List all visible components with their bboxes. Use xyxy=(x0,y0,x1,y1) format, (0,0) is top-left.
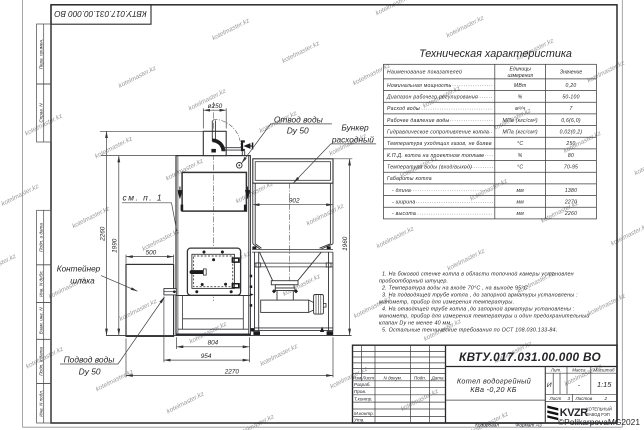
svg-text:МВт: МВт xyxy=(514,83,527,89)
svg-text:0,20: 0,20 xyxy=(566,83,577,89)
svg-text:мм: мм xyxy=(516,200,524,206)
svg-text:м³/ч: м³/ч xyxy=(515,106,525,112)
svg-text:шлака: шлака xyxy=(70,277,95,286)
svg-text:- длина: - длина xyxy=(392,188,411,194)
svg-text:kotelmaster.kz: kotelmaster.kz xyxy=(95,368,135,393)
svg-text:kotelmaster.kz: kotelmaster.kz xyxy=(469,177,509,202)
svg-text:измерения: измерения xyxy=(507,73,533,79)
svg-text:kotelmaster.kz: kotelmaster.kz xyxy=(375,225,415,250)
svg-text:1960: 1960 xyxy=(342,236,349,251)
svg-text:kotelmaster.kz: kotelmaster.kz xyxy=(259,343,299,368)
svg-text:kotelmaster.kz: kotelmaster.kz xyxy=(118,298,158,323)
svg-text:Диапазон рабочего регулировани: Диапазон рабочего регулирования xyxy=(386,95,478,101)
svg-text:Отвод воды: Отвод воды xyxy=(274,114,323,124)
svg-text:мм: мм xyxy=(516,211,524,217)
svg-text:kotelmaster.kz: kotelmaster.kz xyxy=(0,253,18,278)
svg-text:500: 500 xyxy=(146,249,157,256)
svg-text:kotelmaster.kz: kotelmaster.kz xyxy=(25,345,65,370)
svg-text:Подп.: Подп. xyxy=(414,375,426,380)
svg-text:2270: 2270 xyxy=(564,200,577,206)
svg-text:1990: 1990 xyxy=(112,238,119,253)
svg-text:2: 2 xyxy=(604,396,608,401)
svg-text:50-100: 50-100 xyxy=(562,95,579,101)
svg-text:0,6(6,0): 0,6(6,0) xyxy=(561,118,581,124)
svg-text:kotelmaster.kz: kotelmaster.kz xyxy=(0,183,40,208)
svg-text:kotelmaster.kz: kotelmaster.kz xyxy=(94,135,134,160)
svg-text:0,02(0,2): 0,02(0,2) xyxy=(560,130,583,136)
svg-text:80: 80 xyxy=(568,153,574,159)
svg-text:мм: мм xyxy=(516,188,524,194)
svg-text:902: 902 xyxy=(289,198,300,205)
svg-text:kotelmaster.kz: kotelmaster.kz xyxy=(446,247,486,272)
svg-text:kotelmaster.kz: kotelmaster.kz xyxy=(165,157,205,182)
svg-text:2270: 2270 xyxy=(224,368,240,375)
svg-text:%: % xyxy=(518,153,523,159)
svg-text:Расход воды: Расход воды xyxy=(387,106,420,112)
svg-text:Рабочее давление воды: Рабочее давление воды xyxy=(387,118,449,124)
svg-text:©PolikarpovaMG2021: ©PolikarpovaMG2021 xyxy=(558,417,640,427)
svg-text:kotelmaster.kz: kotelmaster.kz xyxy=(281,40,321,65)
svg-text:Лист: Лист xyxy=(361,375,374,380)
svg-text:Лит.: Лит. xyxy=(550,368,562,373)
svg-text:КВТУ.017.031.00.000 ВО: КВТУ.017.031.00.000 ВО xyxy=(54,9,147,18)
svg-text:МПа (кгс/см²): МПа (кгс/см²) xyxy=(503,130,538,136)
svg-text:kotelmaster.kz: kotelmaster.kz xyxy=(166,390,206,415)
svg-text:И: И xyxy=(547,382,552,389)
svg-text:Формат А3: Формат А3 xyxy=(515,423,542,429)
svg-text:kotelmaster.kz: kotelmaster.kz xyxy=(610,222,644,247)
svg-text:Масса: Масса xyxy=(572,368,586,373)
svg-text:клапан Dу не менее 40 мм.: клапан Dу не менее 40 мм. xyxy=(379,321,452,327)
svg-text:МПа (кгс/см²): МПа (кгс/см²) xyxy=(503,118,538,124)
svg-text:Разраб.: Разраб. xyxy=(354,382,371,387)
svg-text:Утв.: Утв. xyxy=(354,418,364,423)
svg-text:Подп. и дата: Подп. и дата xyxy=(38,223,43,252)
svg-text:Инв. N дубл.: Инв. N дубл. xyxy=(38,270,43,297)
svg-text:-: - xyxy=(578,382,581,389)
svg-text:Справ. N: Справ. N xyxy=(38,103,43,123)
svg-text:КВа -0,20 КБ: КВа -0,20 КБ xyxy=(470,385,517,394)
svg-text:5. Остальные технические треб: 5. Остальные технические требования по О… xyxy=(382,328,557,334)
svg-text:N докум.: N докум. xyxy=(384,375,403,380)
svg-text:kotelmaster.kz: kotelmaster.kz xyxy=(306,202,346,227)
svg-text:2260: 2260 xyxy=(564,211,577,217)
svg-text:Габариты котла: Габариты котла xyxy=(387,176,432,182)
svg-text:ø250: ø250 xyxy=(208,103,223,110)
svg-text:1:15: 1:15 xyxy=(597,380,612,389)
svg-text:kotelmaster.kz: kotelmaster.kz xyxy=(118,65,158,90)
svg-text:Температура уходящих газов, не: Температура уходящих газов, не более xyxy=(387,141,492,147)
svg-text:Копировал: Копировал xyxy=(475,423,499,429)
svg-text:kotelmaster.kz: kotelmaster.kz xyxy=(211,17,251,42)
svg-text:- ширина: - ширина xyxy=(392,200,415,206)
svg-text:Изм: Изм xyxy=(353,375,362,380)
svg-text:Бункер: Бункер xyxy=(341,122,369,132)
svg-text:манометр, прибор для измерения: манометр, прибор для измерения температу… xyxy=(379,300,514,306)
svg-text:804: 804 xyxy=(208,340,219,347)
svg-text:Контейнер: Контейнер xyxy=(57,265,101,274)
svg-text:kotelmaster.kz: kotelmaster.kz xyxy=(71,205,111,230)
svg-text:Номинальная мощность: Номинальная мощность xyxy=(387,83,452,89)
svg-text:Гидравлическое сопротивление к: Гидравлическое сопротивление котла xyxy=(387,130,489,136)
svg-text:1. На боковой стенке котла в: 1. На боковой стенке котла в области топ… xyxy=(382,271,574,278)
svg-text:70-95: 70-95 xyxy=(564,165,578,171)
svg-text:пробоотборный штуцер.: пробоотборный штуцер. xyxy=(379,278,448,285)
svg-text:%: % xyxy=(518,95,523,101)
svg-text:kotelmaster.kz: kotelmaster.kz xyxy=(24,112,64,137)
svg-text:манометр, прибор для измерения: манометр, прибор для измерения температу… xyxy=(379,313,590,320)
svg-text:КВТУ.017.031.00.000 ВО: КВТУ.017.031.00.000 ВО xyxy=(459,350,601,364)
svg-text:Т.контр.: Т.контр. xyxy=(354,396,373,401)
svg-text:Листов: Листов xyxy=(575,396,593,401)
svg-text:Дата: Дата xyxy=(430,375,444,380)
svg-text:kotelmaster.kz: kotelmaster.kz xyxy=(375,0,415,17)
svg-text:kotelmaster.kz: kotelmaster.kz xyxy=(633,152,644,177)
svg-text:kotelmaster.kz: kotelmaster.kz xyxy=(445,14,485,39)
svg-text:Значение: Значение xyxy=(560,70,583,76)
svg-text:Dy 50: Dy 50 xyxy=(79,366,101,376)
svg-text:3: 3 xyxy=(568,396,571,401)
svg-text:М.контр.: М.контр. xyxy=(354,411,374,416)
svg-text:2260: 2260 xyxy=(100,226,107,242)
svg-text:Масштаб: Масштаб xyxy=(593,368,614,373)
svg-text:3. На подводящей трубе котла: 3. На подводящей трубе котла , до запорн… xyxy=(382,292,578,299)
svg-text:расходный: расходный xyxy=(331,135,374,145)
svg-text:Инв. N подл.: Инв. N подл. xyxy=(38,390,43,417)
svg-text:°С: °С xyxy=(517,165,523,171)
svg-text:°С: °С xyxy=(517,141,523,147)
svg-text:954: 954 xyxy=(201,353,212,360)
svg-text:Подп. и дата: Подп. и дата xyxy=(38,347,43,376)
svg-text:1380: 1380 xyxy=(565,188,577,194)
svg-text:Взам. инв. N: Взам. инв. N xyxy=(38,307,43,334)
svg-text:Перв. примен.: Перв. примен. xyxy=(38,39,43,70)
svg-text:Подвод воды: Подвод воды xyxy=(64,354,115,364)
svg-text:Техническая характеристика: Техническая характеристика xyxy=(419,48,572,60)
svg-text:2. Температура воды на входе: 2. Температура воды на входе 70°С , на в… xyxy=(381,286,531,292)
svg-text:250: 250 xyxy=(565,141,575,147)
svg-text:Пров.: Пров. xyxy=(354,389,366,394)
svg-text:Dy 50: Dy 50 xyxy=(287,125,309,135)
svg-text:kotelmaster.kz: kotelmaster.kz xyxy=(587,292,627,317)
svg-text:Температура воды (вход/выход): Температура воды (вход/выход) xyxy=(387,165,472,171)
svg-text:7: 7 xyxy=(569,106,572,112)
svg-text:4. На отводящей трубе котла ,: 4. На отводящей трубе котла ,до запорной… xyxy=(382,306,575,313)
svg-text:Наименование показателей: Наименование показателей xyxy=(387,69,462,76)
svg-text:Единицы: Единицы xyxy=(510,67,532,73)
svg-text:- высота: - высота xyxy=(392,211,416,217)
svg-text:kotelmaster.kz: kotelmaster.kz xyxy=(586,59,626,84)
svg-text:см. п. 1: см. п. 1 xyxy=(123,192,164,202)
svg-text:КОТЕЛЬНЫЙ: КОТЕЛЬНЫЙ xyxy=(586,407,612,412)
svg-text:Лист: Лист xyxy=(549,396,562,401)
